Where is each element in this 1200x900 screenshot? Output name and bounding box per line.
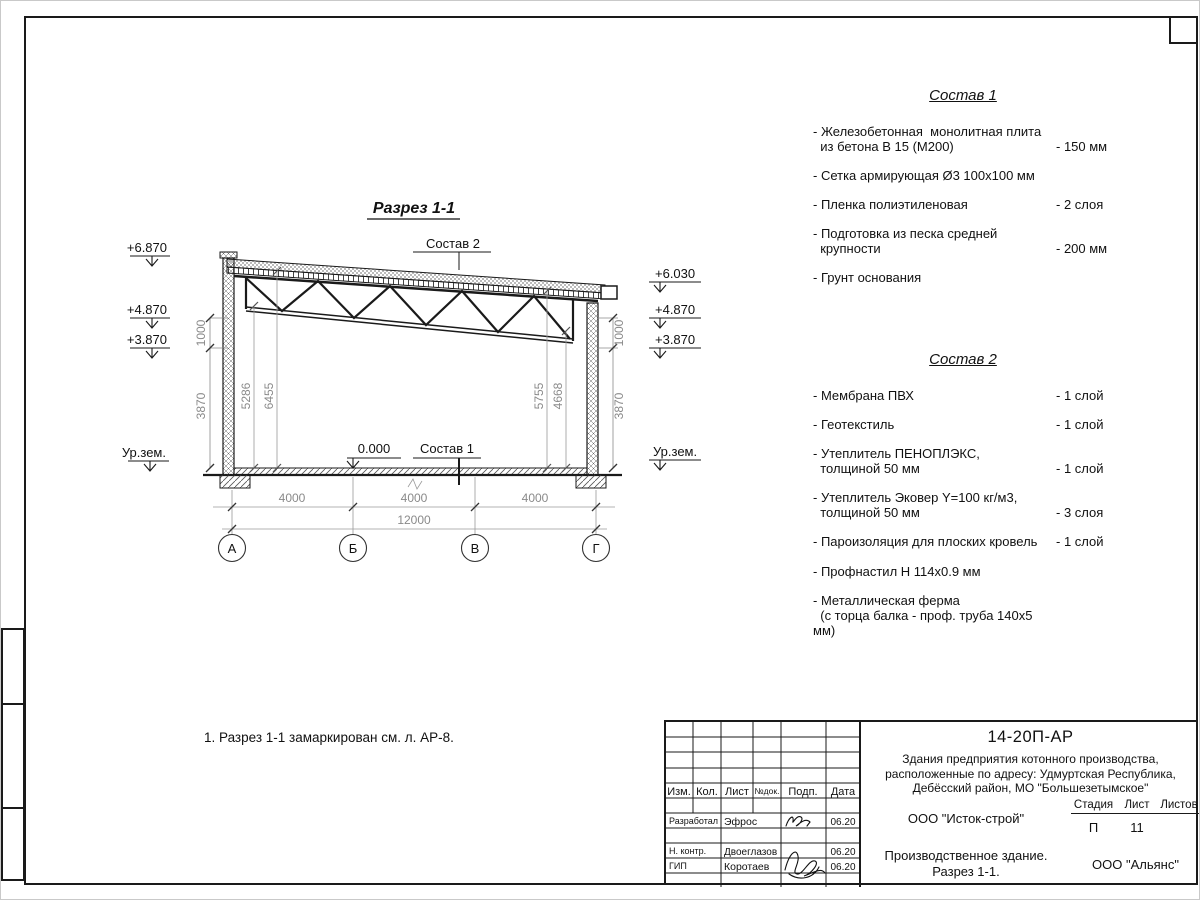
dim-bay3-text: 4000 — [522, 491, 549, 505]
staff-name-1: Эфрос — [724, 816, 757, 828]
svg-text:+4.870: +4.870 — [127, 302, 167, 317]
layer-item: - Геотекстиль - 1 слой — [813, 417, 1113, 432]
elevation-left-low: +3.870 — [127, 332, 170, 358]
layer-item: - Пленка полиэтиленовая - 2 слоя — [813, 197, 1113, 212]
section-title: Разрез 1-1 — [373, 200, 455, 217]
dim-right-wall-text: 3870 — [612, 392, 626, 419]
layer-item: - Грунт основания — [813, 270, 1113, 285]
col-kol: Кол. — [696, 786, 718, 798]
svg-text:+3.870: +3.870 — [655, 332, 695, 347]
customer-organization: ООО "Альянс" — [1071, 841, 1200, 887]
staff-role-3: ГИП — [669, 861, 687, 871]
elevation-left-mid: +4.870 — [127, 302, 170, 328]
dim-inner-right-roof-text: 5755 — [532, 382, 546, 409]
col-ndok: №док. — [755, 786, 780, 796]
object-title: Производственное здание. Разрез 1-1. — [861, 841, 1071, 887]
zero-level-arrow — [347, 458, 359, 468]
dim-left-wall-text: 3870 — [194, 392, 208, 419]
sostav1-list: Состав 1 - Железобетонная монолитная пли… — [813, 87, 1113, 300]
dim-total-text: 12000 — [397, 513, 431, 527]
ground-level-right: Ур.зем. — [649, 444, 701, 470]
dim-left-parapet-text: 1000 — [194, 319, 208, 346]
drawing-note: 1. Разрез 1-1 замаркирован см. л. АР-8. — [204, 730, 454, 745]
layer-item: - Пароизоляция для плоских кровель - 1 с… — [813, 534, 1113, 549]
staff-date-1: 06.20 — [830, 817, 855, 828]
staff-date-2: 06.20 — [830, 847, 855, 858]
title-block-main: 14-20П-АР Здания предприятия котонного п… — [861, 722, 1200, 887]
staff-name-3: Коротаев — [724, 861, 770, 873]
truss-bottom-chord-b — [246, 311, 573, 343]
sheet-value: 11 — [1116, 813, 1158, 841]
title-block: Изм. Кол. Лист №док. Подп. Дата Разработ… — [664, 720, 1198, 885]
sostav1-ref-label: Состав 1 — [420, 441, 474, 456]
sheets-total-value — [1158, 813, 1200, 841]
stage-value: П — [1071, 813, 1116, 841]
layer-item: - Подготовка из песка средней крупности … — [813, 226, 1113, 256]
elevation-right-top: +6.030 — [649, 266, 701, 292]
col-izm: Изм. — [667, 786, 691, 798]
sostav2-list: Состав 2 - Мембрана ПВХ - 1 слой - Геоте… — [813, 351, 1113, 652]
axis-v: В — [471, 541, 480, 556]
layer-item: - Металлическая ферма (с торца балка - п… — [813, 593, 1113, 638]
elevation-right-mid: +4.870 — [649, 302, 701, 328]
svg-text:Ур.зем.: Ур.зем. — [653, 444, 697, 459]
sostav1-title: Состав 1 — [813, 87, 1113, 104]
sostav2-ref-label: Состав 2 — [426, 236, 480, 251]
svg-text:+6.870: +6.870 — [127, 240, 167, 255]
svg-text:+4.870: +4.870 — [655, 302, 695, 317]
dim-inner-left-truss-text: 5286 — [239, 382, 253, 409]
right-footing — [576, 475, 606, 488]
stage-column: Стадия П — [1071, 796, 1116, 841]
left-footing — [220, 475, 250, 488]
dim-bay1-text: 4000 — [279, 491, 306, 505]
stage-header: Стадия — [1071, 796, 1116, 814]
svg-text:Ур.зем.: Ур.зем. — [122, 445, 166, 460]
document-number: 14-20П-АР — [861, 722, 1200, 752]
svg-text:+6.030: +6.030 — [655, 266, 695, 281]
left-wall — [223, 258, 234, 475]
design-organization: ООО "Исток-строй" — [861, 796, 1071, 841]
left-parapet-cap — [220, 252, 237, 258]
axis-g: Г — [592, 541, 599, 556]
drawing-sheet: Разрез 1-1 Состав 2 Состав 1 0.000 — [0, 0, 1200, 900]
dim-right-parapet-text: 1000 — [612, 319, 626, 346]
axis-b: Б — [349, 541, 358, 556]
truss-bottom-chord-a — [246, 307, 573, 339]
svg-text:+3.870: +3.870 — [127, 332, 167, 347]
zero-level-label: 0.000 — [358, 441, 391, 456]
sostav2-title: Состав 2 — [813, 351, 1113, 368]
col-podp: Подп. — [788, 786, 817, 798]
sheets-total-header: Листов — [1158, 796, 1200, 814]
layer-item: - Мембрана ПВХ - 1 слой — [813, 388, 1113, 403]
staff-date-3: 06.20 — [830, 862, 855, 873]
ground-level-left: Ур.зем. — [122, 445, 169, 471]
roof-edge-beam — [601, 286, 617, 299]
layer-item: - Утеплитель ПЕНОПЛЭКС, толщиной 50 мм -… — [813, 446, 1113, 476]
right-wall — [587, 303, 598, 475]
axis-a: А — [228, 541, 237, 556]
dim-inner-right-truss-text: 4668 — [551, 382, 565, 409]
sheet-column: Лист 11 — [1116, 796, 1158, 841]
title-block-staff-table: Изм. Кол. Лист №док. Подп. Дата Разработ… — [666, 722, 861, 887]
dim-bay2-text: 4000 — [401, 491, 428, 505]
staff-role-1: Разработал — [669, 816, 718, 826]
project-description: Здания предприятия котонного производств… — [861, 752, 1200, 796]
sheets-total-column: Листов — [1158, 796, 1200, 841]
elevation-right-low: +3.870 — [649, 332, 701, 358]
staff-role-2: Н. контр. — [669, 846, 706, 856]
layer-item: - Утеплитель Эковер Y=100 кг/м3, толщино… — [813, 490, 1113, 520]
dim-inner-left-roof-text: 6455 — [262, 382, 276, 409]
layer-item: - Сетка армирующая Ø3 100х100 мм — [813, 168, 1113, 183]
col-data: Дата — [831, 786, 856, 798]
sheet-header: Лист — [1116, 796, 1158, 814]
signature-1 — [786, 817, 810, 826]
layer-item: - Железобетонная монолитная плита из бет… — [813, 124, 1113, 154]
elevation-left-top: +6.870 — [127, 240, 170, 266]
layer-item: - Профнастил Н 114х0.9 мм — [813, 564, 1113, 579]
staff-name-2: Двоеглазов — [724, 847, 777, 858]
signature-2 — [785, 852, 825, 878]
col-list: Лист — [725, 786, 749, 798]
axis-bubbles: А Б В Г — [219, 535, 610, 562]
